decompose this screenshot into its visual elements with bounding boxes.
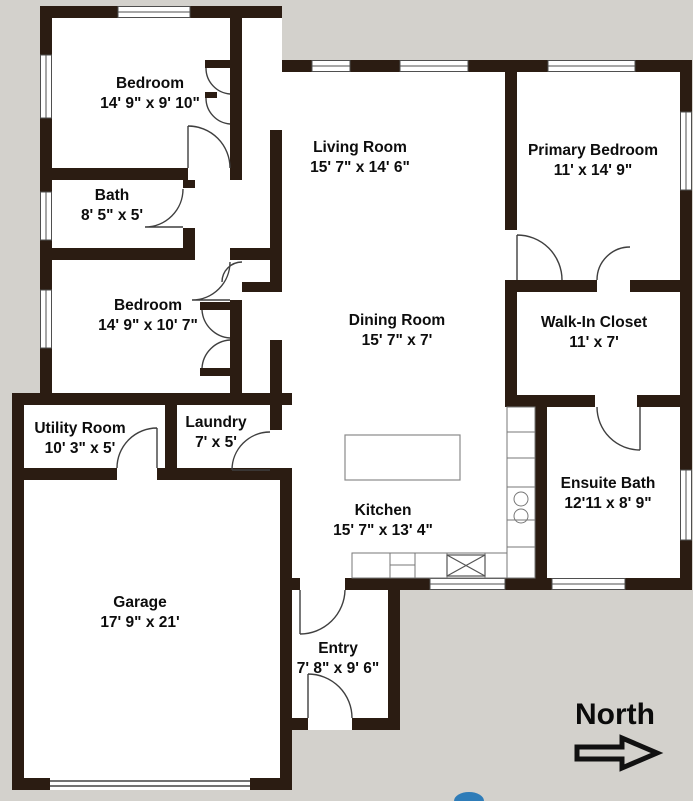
kitchen-island bbox=[345, 435, 460, 480]
window bbox=[552, 579, 625, 590]
window bbox=[681, 470, 692, 540]
window bbox=[681, 112, 692, 190]
floor-plan: North Bedroom 14' 9" x 9' 10" Bath 8' 5"… bbox=[0, 0, 693, 801]
window bbox=[312, 61, 350, 72]
window bbox=[548, 61, 635, 72]
garage-door bbox=[50, 778, 250, 790]
stove bbox=[447, 555, 485, 576]
kitchen-counter-right bbox=[507, 407, 535, 578]
window bbox=[41, 290, 52, 348]
window bbox=[41, 192, 52, 240]
north-label: North bbox=[575, 698, 655, 731]
window bbox=[400, 61, 468, 72]
floor-plan-drawing: North bbox=[0, 0, 693, 801]
window bbox=[430, 579, 505, 590]
window bbox=[41, 55, 52, 118]
window bbox=[118, 7, 190, 18]
